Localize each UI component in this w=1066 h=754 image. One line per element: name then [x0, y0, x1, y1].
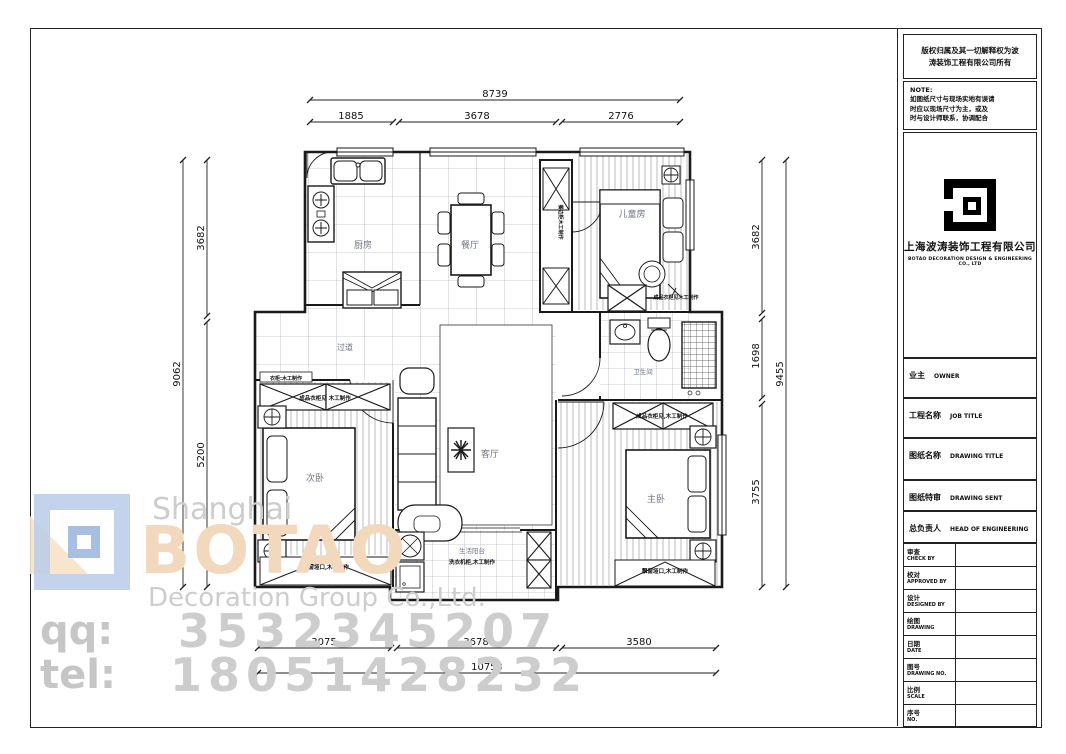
field-owner: 业主OWNER — [903, 358, 1037, 398]
air-conditioner-icon — [662, 166, 680, 184]
stove-icon — [308, 186, 334, 242]
toilet-icon — [648, 318, 670, 361]
drawing-sheet: 厨房 餐厅 儿童房 过道 次卧 客厅 卫生间 主卧 生活阳台 成品衣柜见木工制作… — [0, 0, 1066, 754]
note-line2: 时应以现场尺寸为主，或及 — [910, 105, 1030, 114]
note-hall-wardrobe: 成品衣柜见 木工制作 — [299, 394, 351, 402]
note-master-wardrobe: 成品衣柜见,木工制作 — [636, 412, 688, 420]
room-label-bath: 卫生间 — [633, 367, 653, 376]
row-drawing-no-label: 图号DRAWING NO. — [904, 659, 956, 682]
field-drawing-sent-cn: 图纸特审 — [909, 493, 941, 502]
copyright-line2: 涛装饰工程有限公司所有 — [929, 57, 1012, 68]
dim-top-3: 2776 — [608, 111, 633, 122]
dim-top-2: 3678 — [464, 111, 489, 122]
dim-right-3: 3755 — [751, 479, 762, 504]
room-label-master: 主卧 — [647, 493, 665, 505]
field-head-cn: 总负责人 — [909, 524, 941, 533]
row-no-value — [956, 705, 1036, 728]
note-line3: 时与设计师联系，协调配合 — [910, 114, 1030, 123]
field-head-en: HEAD OF ENGINEERING — [950, 526, 1028, 533]
dim-right-overall: 9455 — [775, 361, 786, 386]
note-kids-wardrobe: 成品衣柜见木工制作 — [653, 294, 698, 301]
laundry-cabinet-icon — [527, 532, 551, 588]
room-label-kids: 儿童房 — [618, 208, 645, 220]
dim-left-2: 5200 — [196, 442, 207, 467]
row-designed-value — [956, 590, 1036, 613]
row-designed-label: 设计DESIGNED BY — [904, 590, 956, 613]
row-drawing-label: 绘图DRAWING — [904, 613, 956, 636]
field-owner-en: OWNER — [934, 373, 959, 380]
row-approved-value — [956, 567, 1036, 590]
company-name-en: BOTAO DECORATION DESIGN & ENGINEERING CO… — [904, 257, 1036, 267]
note-left-bay: 飘窗垭口,木工制作 — [303, 563, 350, 571]
kitchen-sink-icon — [331, 158, 385, 184]
washer-icon — [396, 532, 424, 592]
logo-inner-square — [963, 197, 981, 215]
room-label-laundry: 生活阳台 — [459, 546, 485, 555]
signature-table: 审查CHECK BY 校对APPROVED BY 设计DESIGNED BY 绘… — [903, 543, 1037, 727]
company-name-cn: 上海波涛装饰工程有限公司 — [904, 239, 1036, 254]
field-owner-cn: 业主 — [909, 371, 925, 380]
plant-icon — [448, 428, 474, 472]
row-date-label: 日期DATE — [904, 636, 956, 659]
note-laundry-cabinet: 洗衣机柜,木工制作 — [449, 558, 496, 566]
field-drawing-title-cn: 图纸名称 — [909, 451, 941, 460]
room-label-dining: 餐厅 — [461, 239, 479, 251]
master-bed-icon — [626, 450, 710, 538]
dim-top-1: 1885 — [338, 111, 363, 122]
row-drawing-value — [956, 613, 1036, 636]
field-job-title-cn: 工程名称 — [909, 411, 941, 420]
dim-right-2: 1698 — [751, 343, 762, 368]
field-drawing-title: 图纸名称DRAWING TITLE — [903, 438, 1037, 480]
note-line1: 如图纸尺寸与现场实地有误请 — [910, 95, 1030, 104]
second-bed-icon — [263, 428, 355, 540]
company-box: 上海波涛装饰工程有限公司 BOTAO DECORATION DESIGN & E… — [903, 132, 1037, 358]
bath-sink-icon — [610, 320, 640, 344]
note-box: NOTE: 如图纸尺寸与现场实地有误请 时应以现场尺寸为主，或及 时与设计师联系… — [903, 81, 1037, 130]
row-scale-label: 比例SCALE — [904, 682, 956, 705]
copyright-line1: 版权归属及其一切解释权为波 — [921, 45, 1019, 56]
row-approved-label: 校对APPROVED BY — [904, 567, 956, 590]
room-label-hall: 过道 — [337, 342, 353, 352]
field-drawing-sent: 图纸特审DRAWING SENT — [903, 480, 1037, 511]
field-head-of-engineering: 总负责人HEAD OF ENGINEERING — [903, 511, 1037, 543]
kids-wardrobe-icon — [608, 285, 646, 311]
botao-logo-icon — [944, 179, 996, 231]
room-label-living: 客厅 — [481, 448, 499, 460]
row-date-value — [956, 636, 1036, 659]
field-drawing-sent-en: DRAWING SENT — [950, 495, 1002, 502]
field-job-title-en: JOB TITLE — [950, 413, 982, 420]
row-check-label: 审查CHECK BY — [904, 544, 956, 567]
field-job-title: 工程名称JOB TITLE — [903, 398, 1037, 438]
room-label-kitchen: 厨房 — [354, 239, 372, 251]
note-title: NOTE: — [910, 86, 1030, 95]
note-hall-cabinet-tag: 衣柜:木工制作 — [270, 375, 302, 382]
shower-cabinet-icon — [682, 322, 716, 395]
living-rug — [440, 325, 552, 525]
room-label-second: 次卧 — [306, 472, 324, 484]
dim-bottom-1: 3075 — [311, 637, 336, 648]
dim-left-overall: 9062 — [172, 361, 183, 386]
dim-left-1: 3682 — [196, 225, 207, 250]
dim-right-1: 3682 — [751, 224, 762, 249]
dim-bottom-3: 3580 — [626, 637, 651, 648]
copyright-box: 版权归属及其一切解释权为波 涛装饰工程有限公司所有 — [903, 34, 1037, 79]
dim-top-overall: 8739 — [482, 89, 507, 100]
row-drawing-no-value — [956, 659, 1036, 682]
note-sideboard: 餐边柜木工制作 — [557, 203, 564, 239]
field-drawing-title-en: DRAWING TITLE — [950, 453, 1003, 460]
dim-bottom-overall: 10753 — [471, 662, 503, 673]
logo-notch — [944, 199, 953, 211]
row-check-value — [956, 544, 1036, 567]
note-master-bay: 飘窗垭口,木工制作 — [642, 567, 689, 575]
row-scale-value — [956, 682, 1036, 705]
row-no-label: 序号NO. — [904, 705, 956, 728]
kitchen-counter-icon — [343, 272, 401, 308]
dim-bottom-2: 3678 — [463, 637, 488, 648]
left-bay-window-icon — [260, 557, 391, 585]
